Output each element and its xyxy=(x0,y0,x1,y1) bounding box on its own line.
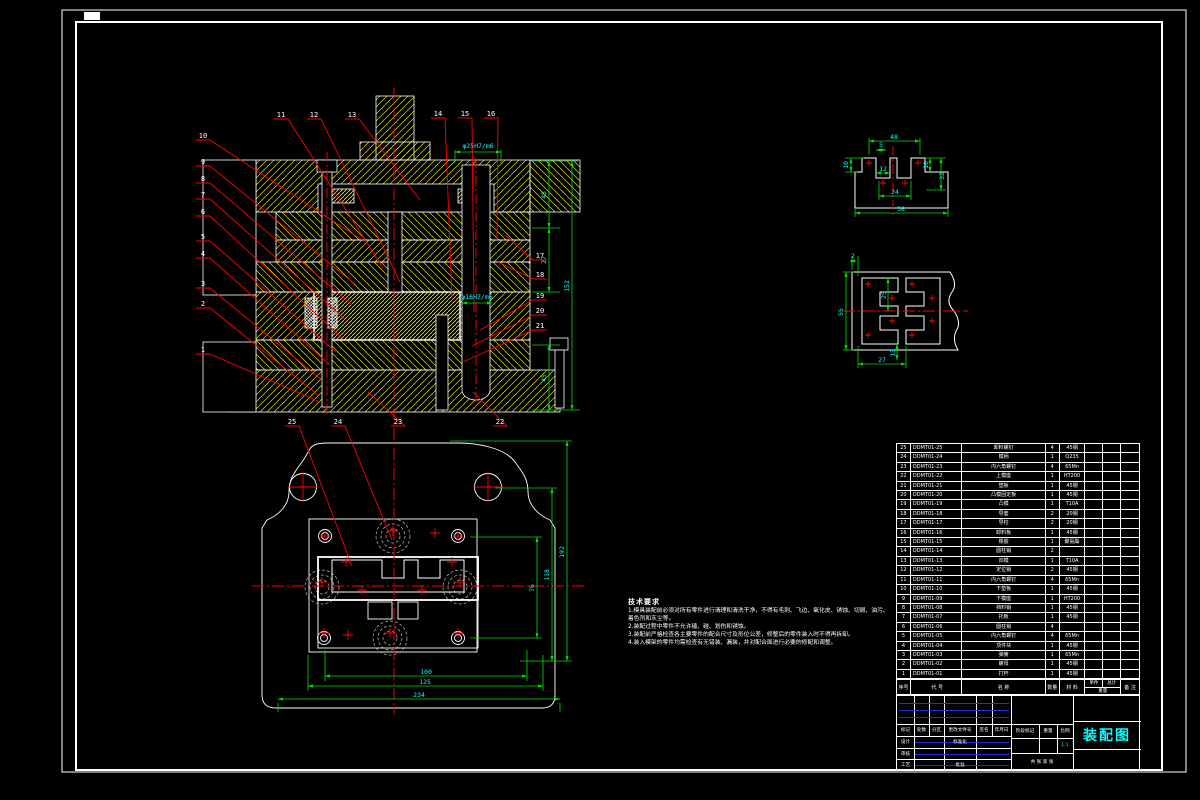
bom-cell-total xyxy=(1103,444,1121,452)
bom-cell-code: DDMT01-24 xyxy=(911,453,963,461)
bom-cell-name: 内六角螺钉 xyxy=(962,632,1045,640)
bom-cell-code: DDMT01-04 xyxy=(911,642,963,650)
bom-cell-qty: 1 xyxy=(1046,482,1060,490)
svg-text:2: 2 xyxy=(201,300,205,308)
bom-cell-material: T10A xyxy=(1060,557,1086,565)
bom-cell-remark xyxy=(1121,670,1139,678)
bom-cell-no: 3 xyxy=(897,651,911,659)
scale-label: 比例 xyxy=(1057,724,1073,738)
shank-flange xyxy=(360,142,430,160)
bom-cell-unit xyxy=(1085,557,1103,565)
bom-cell-qty: 2 xyxy=(1046,519,1060,527)
svg-text:27: 27 xyxy=(540,256,548,264)
bom-cell-qty: 1 xyxy=(1046,604,1060,612)
mark-label: 标记 xyxy=(897,724,914,736)
bom-row: 19 DDMT01-19 凸模 1 T10A xyxy=(897,500,1139,509)
svg-text:13: 13 xyxy=(348,111,356,119)
design-label: 设计 xyxy=(897,736,914,748)
svg-text:24: 24 xyxy=(891,188,899,196)
bom-cell-no: 6 xyxy=(897,623,911,631)
bom-cell-name: 内六角螺钉 xyxy=(962,576,1045,584)
bom-header-name: 名 称 xyxy=(962,680,1045,695)
bom-cell-no: 15 xyxy=(897,538,911,546)
bom-cell-qty: 1 xyxy=(1046,585,1060,593)
svg-text:13: 13 xyxy=(889,349,897,357)
change-doc-label: 更改文件号 xyxy=(944,724,976,736)
svg-text:16: 16 xyxy=(487,110,495,118)
bom-cell-no: 12 xyxy=(897,566,911,574)
scale-value: 1:1 xyxy=(1057,738,1073,753)
bom-cell-code: DDMT01-15 xyxy=(911,538,963,546)
bom-cell-code: DDMT01-03 xyxy=(911,651,963,659)
svg-text:5: 5 xyxy=(201,233,205,241)
svg-text:20: 20 xyxy=(536,307,544,315)
bom-cell-code: DDMT01-08 xyxy=(911,604,963,612)
bom-cell-qty: 1 xyxy=(1046,660,1060,668)
bom-cell-material: HT200 xyxy=(1060,472,1086,480)
bom-cell-remark xyxy=(1121,482,1139,490)
svg-text:15: 15 xyxy=(461,110,469,118)
bom-cell-code: DDMT01-06 xyxy=(911,623,963,631)
bom-cell-qty: 4 xyxy=(1046,632,1060,640)
bom-cell-unit xyxy=(1085,453,1103,461)
svg-text:58: 58 xyxy=(897,205,905,213)
bom-cell-remark xyxy=(1121,595,1139,603)
lower-die-seat xyxy=(230,370,560,412)
left-lower-block xyxy=(203,342,256,412)
bom-cell-qty: 1 xyxy=(1046,670,1060,678)
svg-text:45: 45 xyxy=(540,374,548,382)
bom-cell-code: DDMT01-21 xyxy=(911,482,963,490)
bom-row: 5 DDMT01-05 内六角螺钉 4 65Mn xyxy=(897,632,1139,641)
note-line: 4.装入模架的零件均需检查有无错装、漏装，并对配合面进行必要的修配和调整。 xyxy=(628,639,892,647)
bom-header-qty: 数量 xyxy=(1046,680,1060,695)
bom-cell-material: 45钢 xyxy=(1060,642,1086,650)
svg-text:100: 100 xyxy=(420,668,432,676)
bom-cell-name: 顶件块 xyxy=(962,642,1045,650)
approve-label: 批准 xyxy=(944,759,976,771)
bom-cell-no: 25 xyxy=(897,444,911,452)
bom-cell-remark xyxy=(1121,444,1139,452)
cad-drawing-page: 1 2 3 4 5 6 7 8 9 10 11 12 13 14 15 16 1… xyxy=(0,0,1200,800)
bom-cell-code: DDMT01-16 xyxy=(911,529,963,537)
bom-cell-material: HT200 xyxy=(1060,595,1086,603)
bom-cell-unit xyxy=(1085,472,1103,480)
bom-cell-unit xyxy=(1085,576,1103,584)
bom-cell-total xyxy=(1103,585,1121,593)
bom-cell-code: DDMT01-23 xyxy=(911,463,963,471)
bom-cell-name: 模柄 xyxy=(962,453,1045,461)
bom-row: 23 DDMT01-23 内六角螺钉 4 65Mn xyxy=(897,463,1139,472)
svg-text:118: 118 xyxy=(543,569,551,581)
svg-text:10: 10 xyxy=(922,161,930,169)
bom-cell-remark xyxy=(1121,519,1139,527)
svg-text:45: 45 xyxy=(540,191,548,199)
bom-row: 13 DDMT01-13 凹模 1 T10A xyxy=(897,557,1139,566)
svg-text:10: 10 xyxy=(842,161,850,169)
svg-text:76: 76 xyxy=(528,584,536,592)
bom-cell-qty: 4 xyxy=(1046,444,1060,452)
bom-cell-unit xyxy=(1085,604,1103,612)
bom-cell-total xyxy=(1103,557,1121,565)
bom-row: 8 DDMT01-08 挡料销 1 45钢 xyxy=(897,604,1139,613)
bom-cell-material: 45钢 xyxy=(1060,491,1086,499)
bom-cell-qty: 1 xyxy=(1046,491,1060,499)
lower-bolt-head xyxy=(550,338,568,350)
svg-text:φ25H7/m6: φ25H7/m6 xyxy=(462,142,493,150)
bom-cell-no: 9 xyxy=(897,595,911,603)
bom-cell-code: DDMT01-02 xyxy=(911,660,963,668)
bom-cell-remark xyxy=(1121,463,1139,471)
bom-cell-no: 24 xyxy=(897,453,911,461)
bom-cell-unit xyxy=(1085,566,1103,574)
bom-cell-no: 10 xyxy=(897,585,911,593)
bom-cell-no: 2 xyxy=(897,660,911,668)
bom-cell-material: 45钢 xyxy=(1060,604,1086,612)
bom-cell-total xyxy=(1103,453,1121,461)
bom-cell-qty: 1 xyxy=(1046,595,1060,603)
bom-cell-qty: 4 xyxy=(1046,463,1060,471)
bom-row: 6 DDMT01-06 圆柱销 4 xyxy=(897,623,1139,632)
bom-cell-name: 卸料螺钉 xyxy=(962,444,1045,452)
svg-text:7: 7 xyxy=(201,191,205,199)
bom-cell-name: 下模座 xyxy=(962,595,1045,603)
bom-cell-name: 上模座 xyxy=(962,472,1045,480)
note-line: 2.装配过程中零件不允许磕、碰、划伤和锈蚀。 xyxy=(628,623,892,631)
bom-cell-unit xyxy=(1085,538,1103,546)
bom-cell-material: 20钢 xyxy=(1060,519,1086,527)
bom-cell-material: 45钢 xyxy=(1060,613,1086,621)
bom-cell-no: 8 xyxy=(897,604,911,612)
bom-header-total: 总计 xyxy=(1103,680,1120,687)
bom-cell-total xyxy=(1103,519,1121,527)
bom-cell-remark xyxy=(1121,566,1139,574)
svg-text:192: 192 xyxy=(558,546,566,558)
bom-cell-total xyxy=(1103,500,1121,508)
stage-mark-label: 阶段标记 xyxy=(1011,724,1039,738)
bom-cell-material: 45钢 xyxy=(1060,566,1086,574)
svg-text:11: 11 xyxy=(277,111,285,119)
bom-cell-total xyxy=(1103,604,1121,612)
svg-text:3: 3 xyxy=(201,280,205,288)
centering-mark xyxy=(84,12,100,20)
svg-text:125: 125 xyxy=(419,678,431,686)
svg-text:10: 10 xyxy=(199,132,207,140)
bom-cell-material: 45钢 xyxy=(1060,670,1086,678)
svg-text:5: 5 xyxy=(879,141,883,149)
dowel-pin xyxy=(436,315,448,410)
bom-cell-total xyxy=(1103,529,1121,537)
svg-text:12: 12 xyxy=(310,111,318,119)
bom-cell-total xyxy=(1103,538,1121,546)
svg-text:55: 55 xyxy=(837,308,845,316)
svg-text:8: 8 xyxy=(201,175,205,183)
bom-cell-name: 橡胶 xyxy=(962,538,1045,546)
bom-cell-qty: 2 xyxy=(1046,510,1060,518)
bom-cell-code: DDMT01-14 xyxy=(911,547,963,555)
bom-cell-unit xyxy=(1085,595,1103,603)
bom-header-unit: 单件 xyxy=(1085,680,1103,687)
svg-text:φ16H7/m6: φ16H7/m6 xyxy=(461,293,492,301)
bom-cell-code: DDMT01-20 xyxy=(911,491,963,499)
bom-cell-total xyxy=(1103,660,1121,668)
bom-cell-name: 凹模 xyxy=(962,557,1045,565)
bom-cell-total xyxy=(1103,472,1121,480)
bom-cell-material: 65Mn xyxy=(1060,576,1086,584)
note-line: 1.模具装配前必须对所有零件进行清理和清洗干净，不得有毛刺、飞边、氧化皮、锈蚀、… xyxy=(628,607,892,623)
bom-cell-qty: 1 xyxy=(1046,613,1060,621)
notes-title: 技术要求 xyxy=(628,597,892,607)
bom-cell-remark xyxy=(1121,472,1139,480)
bom-cell-no: 13 xyxy=(897,557,911,565)
bom-row: 11 DDMT01-11 内六角螺钉 4 65Mn xyxy=(897,576,1139,585)
bom-cell-material: 20钢 xyxy=(1060,510,1086,518)
svg-text:48: 48 xyxy=(890,133,898,141)
bom-cell-material: 45钢 xyxy=(1060,660,1086,668)
bom-cell-unit xyxy=(1085,482,1103,490)
bom-header-remark: 备 注 xyxy=(1121,680,1139,695)
bom-cell-qty: 4 xyxy=(1046,623,1060,631)
bom-cell-name: 凸模 xyxy=(962,500,1045,508)
bom-cell-qty: 1 xyxy=(1046,529,1060,537)
svg-text:1: 1 xyxy=(201,346,205,354)
svg-text:24: 24 xyxy=(334,418,342,426)
zone-label: 分区 xyxy=(929,724,944,736)
svg-text:4: 4 xyxy=(201,250,205,258)
bom-cell-no: 18 xyxy=(897,510,911,518)
bom-cell-total xyxy=(1103,632,1121,640)
bom-cell-name: 定位销 xyxy=(962,566,1045,574)
bom-row: 2 DDMT01-02 螺母 1 45钢 xyxy=(897,660,1139,669)
bom-cell-qty: 1 xyxy=(1046,500,1060,508)
bom-cell-name: 打杆 xyxy=(962,670,1045,678)
bom-cell-name: 下垫板 xyxy=(962,585,1045,593)
svg-text:27: 27 xyxy=(878,356,886,364)
bom-header: 序号 代 号 名 称 数量 材 料 单件 总计 重量 备 注 xyxy=(897,679,1139,695)
bom-cell-material: 65Mn xyxy=(1060,632,1086,640)
note-line: 3.装配前严格检查各主要零件的配合尺寸及形位公差，修整后的零件装入时不得再拆卸。 xyxy=(628,631,892,639)
bom-cell-material: 45钢 xyxy=(1060,482,1086,490)
bom-row: 9 DDMT01-09 下模座 1 HT200 xyxy=(897,595,1139,604)
bom-cell-total xyxy=(1103,595,1121,603)
bom-cell-qty: 1 xyxy=(1046,453,1060,461)
svg-text:23: 23 xyxy=(394,418,402,426)
bom-cell-code: DDMT01-17 xyxy=(911,519,963,527)
bom-cell-unit xyxy=(1085,660,1103,668)
svg-text:25: 25 xyxy=(288,418,296,426)
bom-cell-total xyxy=(1103,547,1121,555)
bom-row: 25 DDMT01-25 卸料螺钉 4 45钢 xyxy=(897,444,1139,453)
bom-header-code: 代 号 xyxy=(911,680,963,695)
bom-cell-total xyxy=(1103,576,1121,584)
bom-cell-code: DDMT01-22 xyxy=(911,472,963,480)
plan-view xyxy=(262,443,555,708)
bom-cell-remark xyxy=(1121,576,1139,584)
bom-cell-code: DDMT01-05 xyxy=(911,632,963,640)
svg-text:14: 14 xyxy=(434,110,442,118)
bom-cell-material: Q235 xyxy=(1060,453,1086,461)
bom-cell-no: 22 xyxy=(897,472,911,480)
svg-text:152: 152 xyxy=(563,280,571,292)
bom-row: 12 DDMT01-12 定位销 2 45钢 xyxy=(897,566,1139,575)
bom-cell-total xyxy=(1103,566,1121,574)
bom-cell-name: 圆柱销 xyxy=(962,547,1045,555)
bom-cell-no: 4 xyxy=(897,642,911,650)
bom-cell-unit xyxy=(1085,623,1103,631)
svg-text:22: 22 xyxy=(496,418,504,426)
bom-row: 21 DDMT01-21 垫板 1 45钢 xyxy=(897,482,1139,491)
bom-cell-name: 弹簧 xyxy=(962,651,1045,659)
weight-label: 重量 xyxy=(1039,724,1057,738)
svg-text:234: 234 xyxy=(413,691,425,699)
svg-text:18: 18 xyxy=(536,271,544,279)
bom-cell-material: 45钢 xyxy=(1060,529,1086,537)
bom-cell-qty: 1 xyxy=(1046,651,1060,659)
lower-bolt-shaft xyxy=(555,350,564,408)
bom-cell-qty: 1 xyxy=(1046,538,1060,546)
bom-cell-code: DDMT01-13 xyxy=(911,557,963,565)
bom-cell-code: DDMT01-12 xyxy=(911,566,963,574)
base-plate-outline xyxy=(262,443,555,708)
bom-cell-unit xyxy=(1085,529,1103,537)
bom-cell-total xyxy=(1103,510,1121,518)
bom-cell-no: 17 xyxy=(897,519,911,527)
svg-text:32: 32 xyxy=(938,172,946,180)
bom-cell-no: 23 xyxy=(897,463,911,471)
bom-cell-unit xyxy=(1085,642,1103,650)
bom-row: 3 DDMT01-03 弹簧 1 65Mn xyxy=(897,651,1139,660)
bom-cell-unit xyxy=(1085,632,1103,640)
bom-cell-remark xyxy=(1121,613,1139,621)
bom-cell-qty: 2 xyxy=(1046,547,1060,555)
bom-cell-no: 14 xyxy=(897,547,911,555)
bom-row: 15 DDMT01-15 橡胶 1 聚氨酯 xyxy=(897,538,1139,547)
punch-holder-plate xyxy=(276,212,530,240)
bom-cell-unit xyxy=(1085,519,1103,527)
bom-cell-code: DDMT01-11 xyxy=(911,576,963,584)
bom-rows: 25 DDMT01-25 卸料螺钉 4 45钢 24 DDMT01-24 模柄 … xyxy=(897,444,1139,679)
bom-header-material: 材 料 xyxy=(1060,680,1086,695)
bom-cell-code: DDMT01-01 xyxy=(911,670,963,678)
drawing-title: 装配图 xyxy=(1074,721,1140,749)
bom-cell-remark xyxy=(1121,547,1139,555)
bom-cell-total xyxy=(1103,463,1121,471)
svg-text:21: 21 xyxy=(536,322,544,330)
bom-cell-remark xyxy=(1121,510,1139,518)
bom-cell-qty: 1 xyxy=(1046,472,1060,480)
bom-cell-remark xyxy=(1121,453,1139,461)
bom-row: 14 DDMT01-14 圆柱销 2 xyxy=(897,547,1139,556)
bom-cell-remark xyxy=(1121,623,1139,631)
title-block: 装配图 阶段标记 重量 比例 1:1 共 张 第 张 标记 处数 分区 更改文件… xyxy=(896,695,1140,770)
bom-cell-no: 16 xyxy=(897,529,911,537)
bom-cell-no: 19 xyxy=(897,500,911,508)
bom-cell-code: DDMT01-09 xyxy=(911,595,963,603)
bom-cell-total xyxy=(1103,642,1121,650)
bom-row: 17 DDMT01-17 导柱 2 20钢 xyxy=(897,519,1139,528)
bom-cell-name: 挡料销 xyxy=(962,604,1045,612)
bom-cell-name: 凸模固定板 xyxy=(962,491,1045,499)
bom-cell-name: 圆柱销 xyxy=(962,623,1045,631)
bom-cell-unit xyxy=(1085,651,1103,659)
bom-cell-total xyxy=(1103,482,1121,490)
bom-cell-no: 5 xyxy=(897,632,911,640)
bom-cell-remark xyxy=(1121,604,1139,612)
bom-cell-remark xyxy=(1121,529,1139,537)
section-view xyxy=(203,96,580,412)
bom-cell-remark xyxy=(1121,632,1139,640)
upper-right-block xyxy=(530,160,580,212)
bom-cell-remark xyxy=(1121,491,1139,499)
bom-row: 16 DDMT01-16 卸料板 1 45钢 xyxy=(897,529,1139,538)
bom-cell-no: 20 xyxy=(897,491,911,499)
bom-row: 22 DDMT01-22 上模座 1 HT200 xyxy=(897,472,1139,481)
standard-label: 标准化 xyxy=(944,736,976,748)
bom-cell-no: 21 xyxy=(897,482,911,490)
bom-cell-name: 导柱 xyxy=(962,519,1045,527)
sign-label: 签名 xyxy=(976,724,992,736)
bom-row: 10 DDMT01-10 下垫板 1 45钢 xyxy=(897,585,1139,594)
bom-cell-unit xyxy=(1085,585,1103,593)
bom-cell-name: 卸料板 xyxy=(962,529,1045,537)
bom-cell-unit xyxy=(1085,444,1103,452)
pilot-window-left xyxy=(368,602,392,619)
bom-cell-code: DDMT01-19 xyxy=(911,500,963,508)
bom-cell-remark xyxy=(1121,538,1139,546)
svg-text:6: 6 xyxy=(201,208,205,216)
pilot-window-right xyxy=(398,602,418,619)
svg-text:19: 19 xyxy=(536,292,544,300)
svg-text:25: 25 xyxy=(880,291,888,299)
bom-cell-qty: 1 xyxy=(1046,642,1060,650)
bom-cell-unit xyxy=(1085,500,1103,508)
bom-cell-unit xyxy=(1085,613,1103,621)
bom-cell-material xyxy=(1060,623,1086,631)
date-label: 年月日 xyxy=(992,724,1011,736)
bom-cell-name: 托板 xyxy=(962,613,1045,621)
bom-cell-unit xyxy=(1085,491,1103,499)
bom-cell-qty: 4 xyxy=(1046,576,1060,584)
bom-cell-material xyxy=(1060,547,1086,555)
bom-cell-remark xyxy=(1121,500,1139,508)
bom-cell-code: DDMT01-07 xyxy=(911,613,963,621)
bom-row: 24 DDMT01-24 模柄 1 Q235 xyxy=(897,453,1139,462)
bom-cell-unit xyxy=(1085,463,1103,471)
check-label: 审核 xyxy=(897,748,914,759)
bom-header-no: 序号 xyxy=(897,680,911,695)
bom-row: 7 DDMT01-07 托板 1 45钢 xyxy=(897,613,1139,622)
bom-cell-material: 聚氨酯 xyxy=(1060,538,1086,546)
bom-cell-total xyxy=(1103,623,1121,631)
bom-header-weight-group: 单件 总计 重量 xyxy=(1085,680,1121,695)
bom-cell-remark xyxy=(1121,660,1139,668)
bom-cell-code: DDMT01-25 xyxy=(911,444,963,452)
bom-cell-material: 65Mn xyxy=(1060,463,1086,471)
bom-cell-material: 45钢 xyxy=(1060,444,1086,452)
bom-row: 1 DDMT01-01 打杆 1 45钢 xyxy=(897,670,1139,679)
bom-row: 18 DDMT01-18 导套 2 20钢 xyxy=(897,510,1139,519)
bom-cell-remark xyxy=(1121,651,1139,659)
bom-cell-material: 45钢 xyxy=(1060,585,1086,593)
bom-cell-total xyxy=(1103,670,1121,678)
spring-right xyxy=(328,298,337,328)
svg-text:9: 9 xyxy=(201,158,205,166)
bom-cell-material: 65Mn xyxy=(1060,651,1086,659)
process-label: 工艺 xyxy=(897,759,914,771)
bom-cell-no: 11 xyxy=(897,576,911,584)
bom-cell-unit xyxy=(1085,547,1103,555)
sheet-info: 共 张 第 张 xyxy=(1011,753,1073,771)
